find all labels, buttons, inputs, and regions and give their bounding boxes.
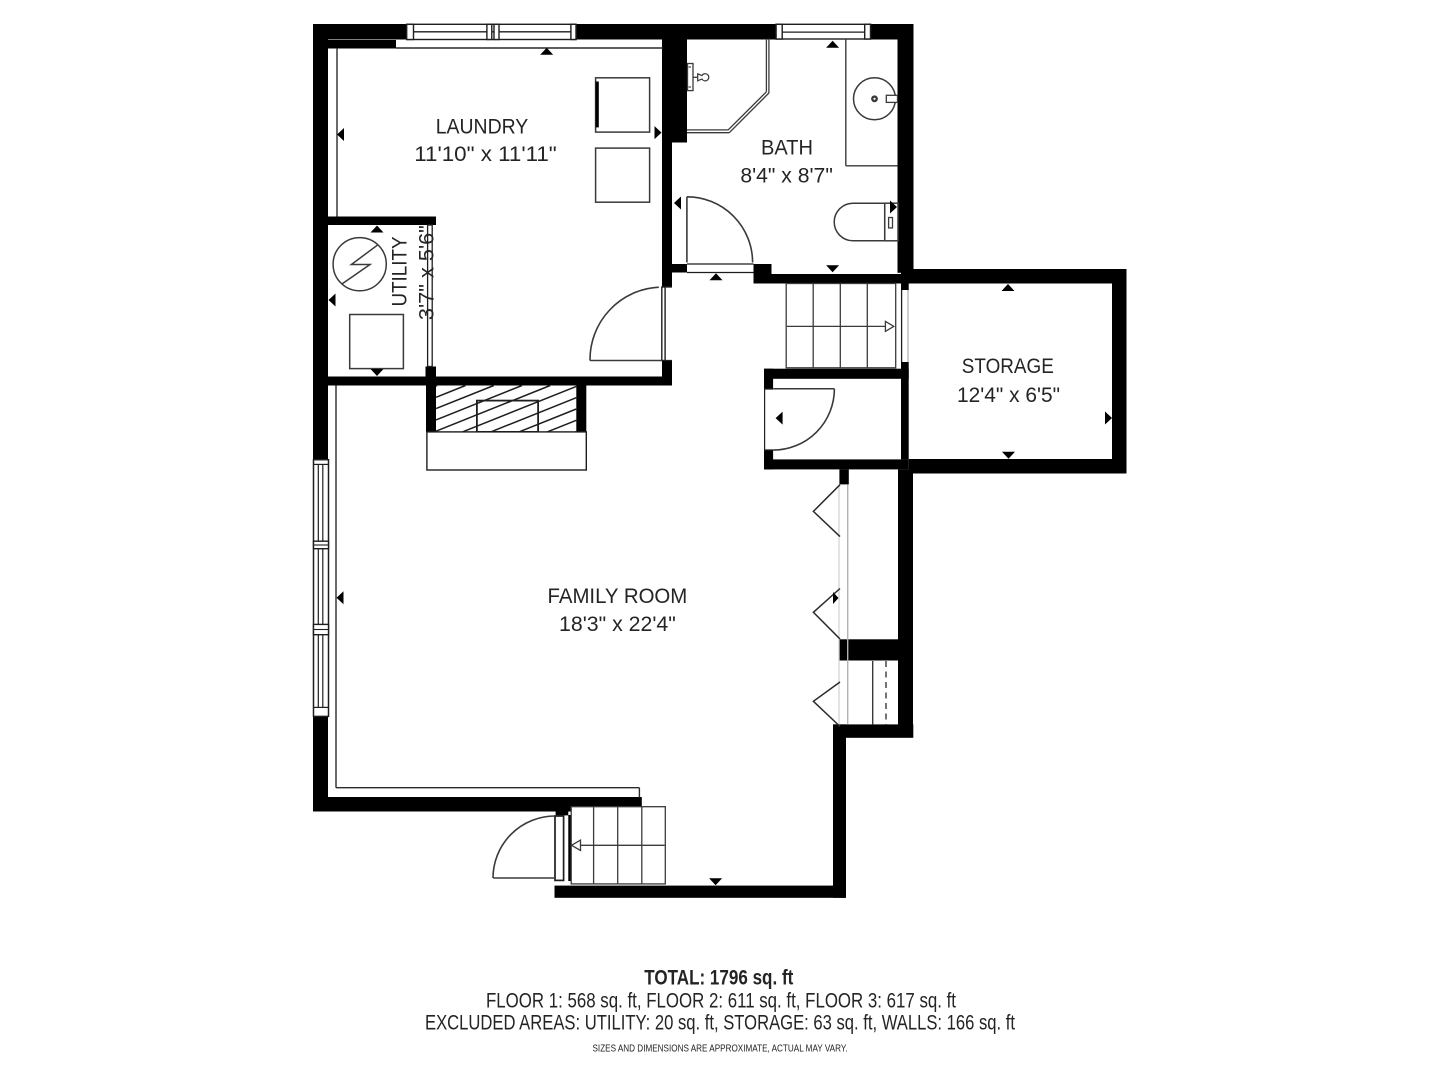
- svg-text:FAMILY ROOM: FAMILY ROOM: [548, 585, 688, 608]
- svg-text:EXCLUDED AREAS: UTILITY: 20 sq: EXCLUDED AREAS: UTILITY: 20 sq. ft, STOR…: [425, 1012, 1015, 1035]
- svg-text:11'10" x 11'11": 11'10" x 11'11": [414, 143, 557, 166]
- svg-text:3'7" x 5'6": 3'7" x 5'6": [416, 225, 439, 320]
- svg-text:FLOOR 1: 568 sq. ft, FLOOR 2:: FLOOR 1: 568 sq. ft, FLOOR 2: 611 sq. ft…: [486, 990, 956, 1013]
- svg-text:LAUNDRY: LAUNDRY: [436, 116, 529, 139]
- svg-text:TOTAL: 1796 sq. ft: TOTAL: 1796 sq. ft: [644, 967, 793, 990]
- svg-text:12'4" x 6'5": 12'4" x 6'5": [957, 384, 1060, 407]
- svg-text:STORAGE: STORAGE: [962, 355, 1054, 378]
- svg-text:UTILITY: UTILITY: [389, 237, 412, 307]
- svg-text:BATH: BATH: [761, 136, 813, 159]
- svg-text:8'4" x 8'7": 8'4" x 8'7": [740, 165, 833, 188]
- svg-text:SIZES AND DIMENSIONS ARE APPRO: SIZES AND DIMENSIONS ARE APPROXIMATE, AC…: [593, 1043, 848, 1055]
- svg-text:18'3" x 22'4": 18'3" x 22'4": [559, 613, 676, 636]
